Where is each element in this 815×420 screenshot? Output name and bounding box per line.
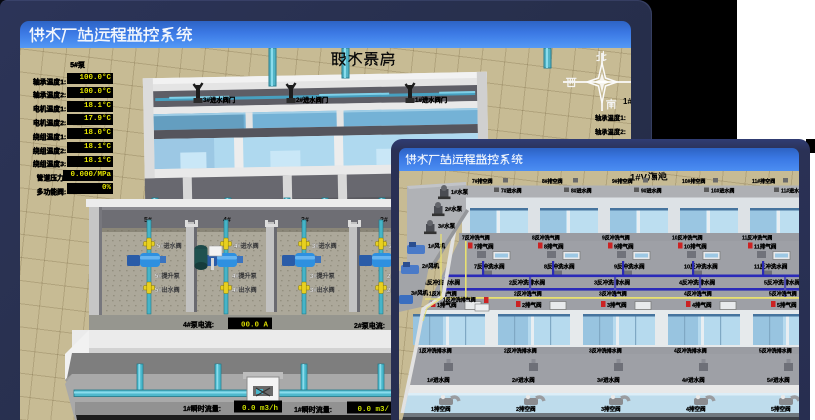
svg-text:11#排空阀: 11#排空阀 <box>752 178 775 185</box>
svg-text:1反冲洗排水阀: 1反冲洗排水阀 <box>424 278 461 286</box>
svg-text:4#泵电流:: 4#泵电流: <box>183 320 214 329</box>
svg-text:9反冲洗水阀: 9反冲洗水阀 <box>614 262 645 270</box>
svg-text:8#排空阀: 8#排空阀 <box>542 178 563 185</box>
svg-text:5排气阀: 5排气阀 <box>777 301 797 309</box>
svg-text:10反冲洗水阀: 10反冲洗水阀 <box>684 262 718 270</box>
svg-text:2排气阀: 2排气阀 <box>522 301 542 309</box>
svg-text:1#水泵: 1#水泵 <box>451 188 469 196</box>
svg-text:00.0 A: 00.0 A <box>241 322 269 330</box>
svg-text:1#风机: 1#风机 <box>428 242 446 250</box>
svg-text:10#进水阀: 10#进水阀 <box>711 187 734 194</box>
svg-text:7反冲洗气阀: 7反冲洗气阀 <box>462 234 490 241</box>
svg-text:3#进水阀: 3#进水阀 <box>597 376 620 384</box>
svg-text:2反冲洗气阀: 2反冲洗气阀 <box>514 290 542 297</box>
svg-text:10反冲洗气阀: 10反冲洗气阀 <box>672 234 703 241</box>
svg-text:5#进水阀: 5#进水阀 <box>157 242 182 250</box>
svg-text:5#提升泵: 5#提升泵 <box>155 272 181 280</box>
svg-text:2#泵电流:: 2#泵电流: <box>354 321 385 330</box>
svg-text:7反冲洗水阀: 7反冲洗水阀 <box>474 262 505 270</box>
svg-text:9#进水阀: 9#进水阀 <box>641 187 662 194</box>
svg-text:8反冲洗水阀: 8反冲洗水阀 <box>544 262 575 270</box>
svg-text:3反冲洗排水阀: 3反冲洗排水阀 <box>594 278 631 286</box>
svg-text:1反冲洗排气阀: 1反冲洗排气阀 <box>443 296 476 303</box>
svg-text:9排气阀: 9排气阀 <box>614 242 634 250</box>
svg-text:4排空阀: 4排空阀 <box>686 405 706 413</box>
svg-text:2#进水阀门: 2#进水阀门 <box>296 95 328 104</box>
svg-text:2排空阀: 2排空阀 <box>516 405 536 413</box>
svg-text:0.0 m3/: 0.0 m3/ <box>357 406 389 414</box>
svg-text:8反冲洗气阀: 8反冲洗气阀 <box>532 234 560 241</box>
svg-text:1#: 1# <box>623 97 631 106</box>
svg-text:4反冲洗气阀: 4反冲洗气阀 <box>684 290 712 297</box>
svg-text:11#进水阀: 11#进水阀 <box>781 187 799 194</box>
svg-text:11反冲洗水阀: 11反冲洗水阀 <box>754 262 788 270</box>
svg-text:4#出水阀: 4#出水阀 <box>232 286 257 294</box>
svg-text:2#风机: 2#风机 <box>422 262 440 270</box>
svg-text:3#出水阀: 3#出水阀 <box>310 286 335 294</box>
svg-text:5反冲洗气阀: 5反冲洗气阀 <box>769 290 797 297</box>
svg-text:轴承温度2:: 轴承温度2: <box>595 127 626 136</box>
svg-text:3排气阀: 3排气阀 <box>607 301 627 309</box>
svg-text:1排空阀: 1排空阀 <box>431 405 451 413</box>
svg-text:1#进水阀: 1#进水阀 <box>427 376 450 384</box>
svg-text:5反冲洗排水阀: 5反冲洗排水阀 <box>759 347 792 354</box>
svg-text:4反冲洗排水阀: 4反冲洗排水阀 <box>674 347 707 354</box>
svg-text:2反冲洗排水阀: 2反冲洗排水阀 <box>509 278 546 286</box>
svg-text:3反冲洗气阀: 3反冲洗气阀 <box>599 290 627 297</box>
svg-text:4#提升泵: 4#提升泵 <box>232 272 258 280</box>
svg-text:10排气阀: 10排气阀 <box>684 242 707 250</box>
svg-text:4反冲洗排水阀: 4反冲洗排水阀 <box>679 278 716 286</box>
svg-text:7#排空阀: 7#排空阀 <box>472 178 493 185</box>
svg-text:3#进水阀门: 3#进水阀门 <box>203 95 235 104</box>
svg-text:5#进水阀: 5#进水阀 <box>767 376 790 384</box>
svg-text:9#排空阀: 9#排空阀 <box>612 178 633 185</box>
svg-text:8排气阀: 8排气阀 <box>544 242 564 250</box>
svg-text:8#进水阀: 8#进水阀 <box>571 187 592 194</box>
svg-text:4#进水阀: 4#进水阀 <box>234 242 259 250</box>
svg-text:5排空阀: 5排空阀 <box>771 405 791 413</box>
svg-text:4#进水阀: 4#进水阀 <box>682 376 705 384</box>
svg-text:0.0 m3/h: 0.0 m3/h <box>242 405 279 413</box>
svg-text:11排气阀: 11排气阀 <box>754 242 777 250</box>
svg-text:10#排空阀: 10#排空阀 <box>682 178 705 185</box>
svg-text:2#水泵: 2#水泵 <box>445 205 463 213</box>
svg-text:1#瞬时流量:: 1#瞬时流量: <box>294 405 332 414</box>
svg-text:3#风机: 3#风机 <box>411 289 429 297</box>
svg-text:7#进水阀: 7#进水阀 <box>501 187 522 194</box>
svg-text:3#提升泵: 3#提升泵 <box>310 272 336 280</box>
svg-text:2反冲洗排水阀: 2反冲洗排水阀 <box>504 347 537 354</box>
svg-text:9反冲洗气阀: 9反冲洗气阀 <box>602 234 630 241</box>
svg-text:5#出水阀: 5#出水阀 <box>155 286 180 294</box>
svg-text:11反冲洗气阀: 11反冲洗气阀 <box>742 234 772 241</box>
svg-text:1反冲洗排水阀: 1反冲洗排水阀 <box>419 347 452 354</box>
svg-text:5反冲洗排水阀: 5反冲洗排水阀 <box>764 278 799 286</box>
svg-text:1#瞬时流量:: 1#瞬时流量: <box>183 404 221 413</box>
svg-text:1#进水阀门: 1#进水阀门 <box>415 95 447 104</box>
svg-text:2#进水阀: 2#进水阀 <box>512 376 535 384</box>
svg-text:3反冲洗排水阀: 3反冲洗排水阀 <box>589 347 622 354</box>
svg-text:轴承温度1:: 轴承温度1: <box>595 113 626 122</box>
svg-text:3#进水阀: 3#进水阀 <box>312 242 337 250</box>
svg-text:3排空阀: 3排空阀 <box>601 405 621 413</box>
svg-text:3#水泵: 3#水泵 <box>438 222 456 230</box>
svg-text:4排气阀: 4排气阀 <box>692 301 712 309</box>
svg-text:7排气阀: 7排气阀 <box>474 242 494 250</box>
